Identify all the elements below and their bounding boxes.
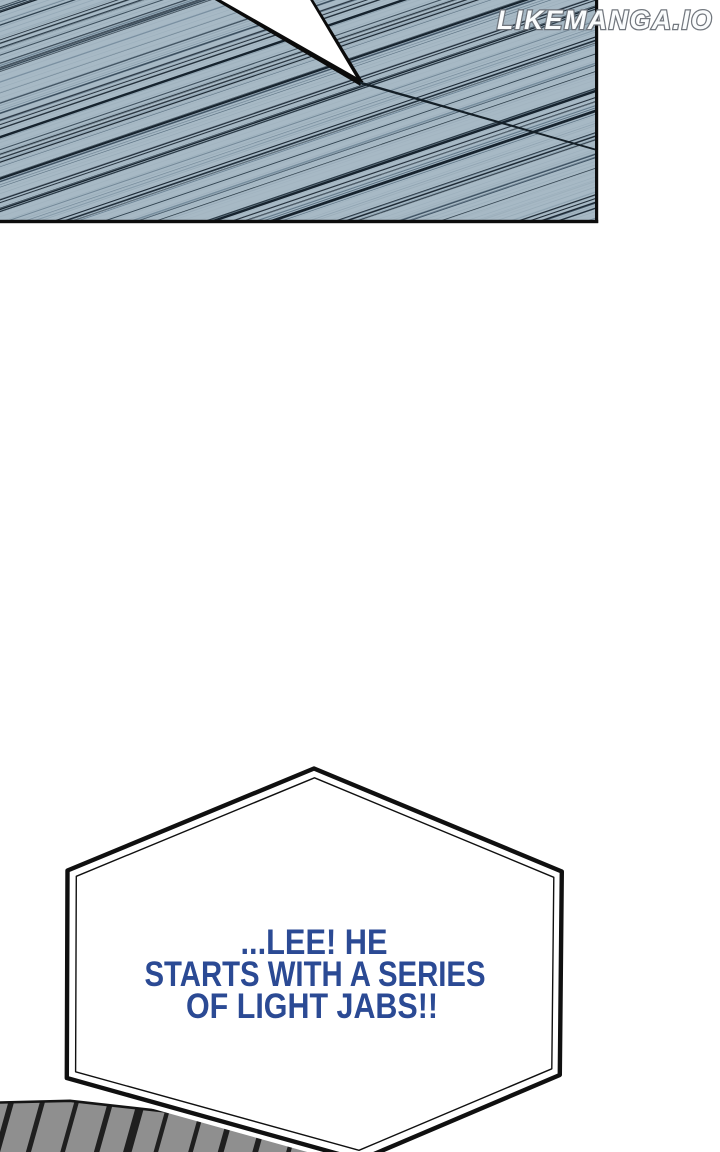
svg-text:OF LIGHT JABS!!: OF LIGHT JABS!!: [186, 987, 438, 1026]
svg-text:LIKEMANGA.IO: LIKEMANGA.IO: [497, 5, 713, 35]
